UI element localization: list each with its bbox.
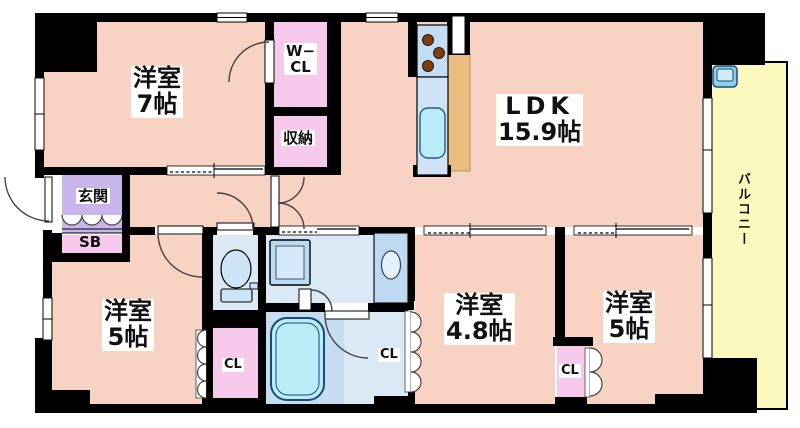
- washroom-inner-door: [299, 289, 311, 310]
- stove-burner-icon: [423, 35, 434, 46]
- room-name: 洋室: [104, 299, 152, 325]
- room-name: 洋室: [605, 291, 653, 317]
- room-name: 洋室: [446, 293, 513, 319]
- wcl-door: [265, 40, 274, 83]
- label-bed48: 洋室 4.8帖: [444, 293, 515, 345]
- room-name: 洋室: [133, 66, 181, 92]
- label-closet-left: CL: [222, 358, 244, 372]
- room-size: 5帖: [605, 317, 653, 343]
- label-bed5-right: 洋室 5帖: [603, 291, 655, 343]
- bathtub: [271, 318, 324, 400]
- room-name: LDK: [498, 94, 581, 120]
- folding-door-closet-mid: [405, 311, 411, 392]
- folding-door-closet-right: [585, 348, 590, 397]
- washing-machine-inner: [276, 246, 304, 279]
- window-bed5-right: [703, 258, 712, 358]
- hallway: [130, 175, 341, 227]
- label-closet-mid: CL: [378, 348, 400, 362]
- label-closet-right: CL: [559, 364, 581, 378]
- wcl-line1: W−: [286, 43, 315, 59]
- bed5-left-door: [158, 226, 203, 234]
- toilet-bowl: [221, 250, 251, 288]
- stove-burner-icon: [423, 61, 434, 72]
- toilet-tank: [221, 289, 252, 302]
- sliding-door-bed5-right: [574, 226, 692, 235]
- room-size: 7帖: [133, 92, 181, 118]
- label-shoe-box: SB: [77, 234, 103, 250]
- sliding-door-bed48: [424, 226, 546, 235]
- pillar-top-right: [703, 13, 765, 65]
- bathroom-door: [325, 311, 369, 319]
- room-size: 15.9帖: [498, 120, 581, 146]
- washbasin-sink: [382, 251, 401, 279]
- toilet-handle: [250, 283, 258, 289]
- room-size: 4.8帖: [446, 319, 513, 345]
- label-entrance: 玄関: [76, 188, 110, 204]
- entrance-door: [45, 177, 52, 222]
- sliding-door-bed7: [167, 166, 265, 175]
- kitchen-counter-tan: [448, 53, 470, 171]
- label-storage: 収納: [281, 130, 315, 146]
- label-ldk: LDK 15.9帖: [496, 94, 583, 146]
- hall-ldk-door: [271, 176, 279, 227]
- window-ldk-balcony: [703, 98, 712, 213]
- kitchen-sink: [420, 108, 445, 158]
- floor-plan: 洋室 7帖 LDK 15.9帖 洋室 5帖 洋室 4.8帖 洋室 5帖 W− C…: [0, 0, 800, 428]
- window-kitchen: [452, 16, 465, 54]
- label-bed7: 洋室 7帖: [131, 66, 183, 118]
- stove-burner-icon: [434, 48, 445, 59]
- floor-plan-drawing: [0, 0, 800, 428]
- pillar-top-left: [35, 13, 97, 72]
- toilet-door: [217, 223, 254, 230]
- label-bed5-left: 洋室 5帖: [102, 299, 154, 351]
- wcl-line2: CL: [286, 59, 315, 75]
- label-walk-in-closet: W− CL: [284, 43, 317, 75]
- balcony-slop-sink-basin: [717, 69, 733, 81]
- sliding-door-washroom: [279, 226, 359, 235]
- label-balcony: バルコニー: [733, 172, 751, 247]
- room-size: 5帖: [104, 325, 152, 351]
